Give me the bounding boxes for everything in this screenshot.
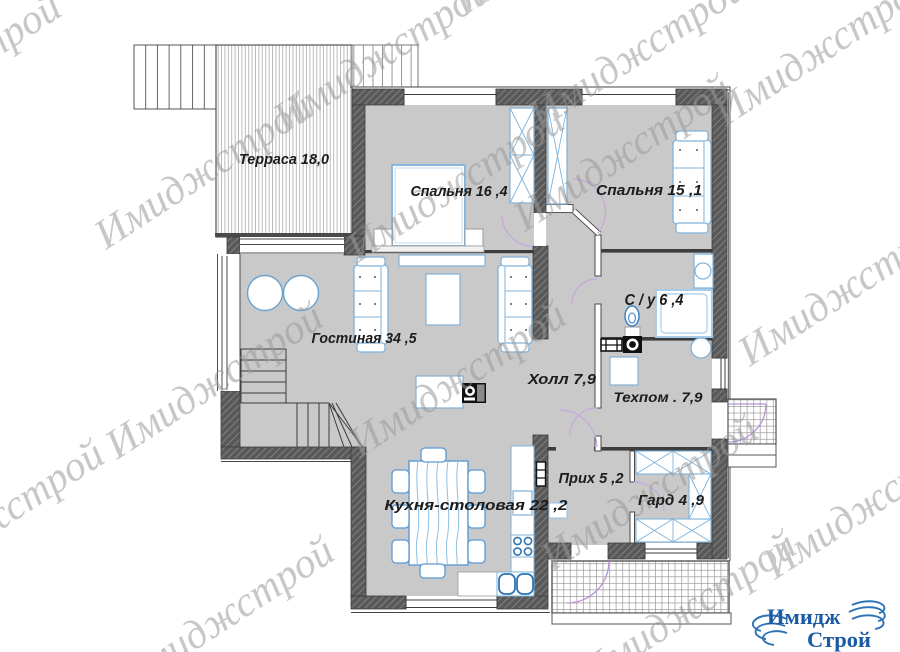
- svg-text:С / у 6 ,4: С / у 6 ,4: [625, 292, 684, 309]
- svg-text:Холл 7,9: Холл 7,9: [527, 371, 597, 388]
- svg-text:Прих 5 ,2: Прих 5 ,2: [559, 470, 625, 487]
- svg-text:Гостиная 34 ,5: Гостиная 34 ,5: [312, 330, 418, 347]
- svg-text:Спальня 15 ,1: Спальня 15 ,1: [596, 182, 702, 199]
- svg-text:Спальня 16 ,4: Спальня 16 ,4: [411, 183, 509, 200]
- svg-text:Кухня-столовая 22 ,2: Кухня-столовая 22 ,2: [385, 497, 569, 514]
- svg-text:Терраса 18,0: Терраса 18,0: [239, 151, 330, 168]
- svg-text:Техпом . 7,9: Техпом . 7,9: [614, 389, 703, 405]
- svg-text:Гард 4 ,9: Гард 4 ,9: [638, 492, 705, 509]
- svg-text:Имидж: Имидж: [767, 604, 841, 629]
- svg-text:Строй: Строй: [807, 627, 871, 652]
